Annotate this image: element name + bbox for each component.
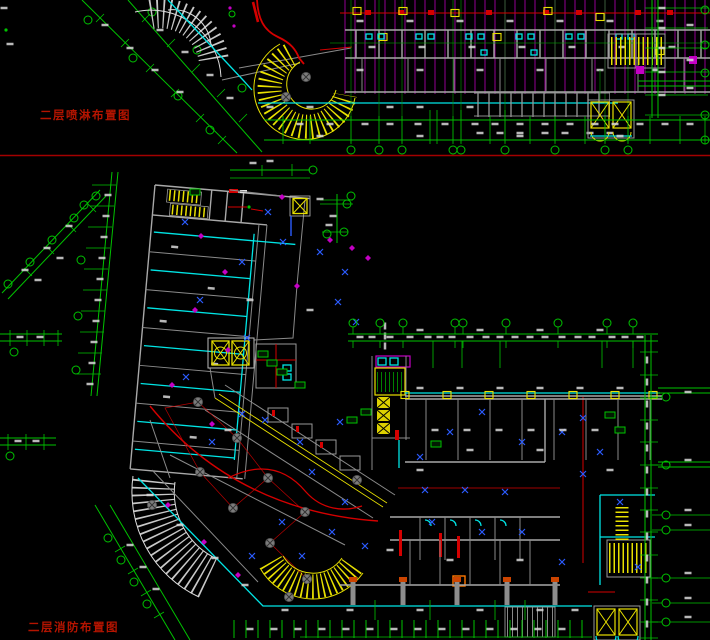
survey-marks	[228, 6, 235, 27]
cad-canvas[interactable]: 二层喷淋布置图 二层消防布置图	[0, 0, 710, 640]
valves-magenta	[165, 194, 371, 578]
cad-viewport[interactable]: 二层喷淋布置图 二层消防布置图	[0, 0, 710, 640]
dimension-chain-left-of-wing	[72, 172, 118, 396]
top-building-plan	[253, 0, 710, 154]
service-shaft-stack	[372, 356, 410, 470]
stairs-yellow-wing-top	[165, 189, 209, 219]
hydrant-pipe-red	[228, 207, 263, 211]
left-wing-plan	[130, 185, 309, 482]
dimension-chain-diagonal-topleft	[1, 0, 263, 153]
baseline-columns	[349, 577, 559, 605]
corridor-diagonal	[205, 385, 395, 518]
misc-text-marks	[147, 299, 624, 612]
dimension-chain-right	[640, 335, 710, 640]
sprinkler-heads	[182, 209, 641, 570]
elevator-shafts-bottom	[594, 606, 640, 640]
bottom-sheet-fire-plan	[0, 160, 710, 640]
sheet-title-top: 二层喷淋布置图	[40, 108, 131, 122]
facade-line-cyan-top	[168, 0, 252, 90]
curved-wall-red	[257, 0, 304, 64]
curved-stair-hatched-bottom	[132, 420, 345, 597]
dimension-ticks-left-edge	[0, 330, 62, 460]
fire-main-red	[150, 397, 583, 579]
stair-yellow-right-bottom	[600, 495, 655, 585]
door-swings-cyan	[425, 520, 506, 526]
storefront-columns	[474, 93, 610, 117]
stair-yellow-right-top	[608, 34, 665, 68]
dimension-chain-middle	[348, 319, 658, 368]
elevator-wing-top	[290, 196, 310, 216]
fan-stair-yellow-top	[254, 44, 355, 140]
top-sheet-sprinkler-plan	[1, 0, 710, 154]
sheet-title-bottom: 二层消防布置图	[28, 620, 119, 634]
